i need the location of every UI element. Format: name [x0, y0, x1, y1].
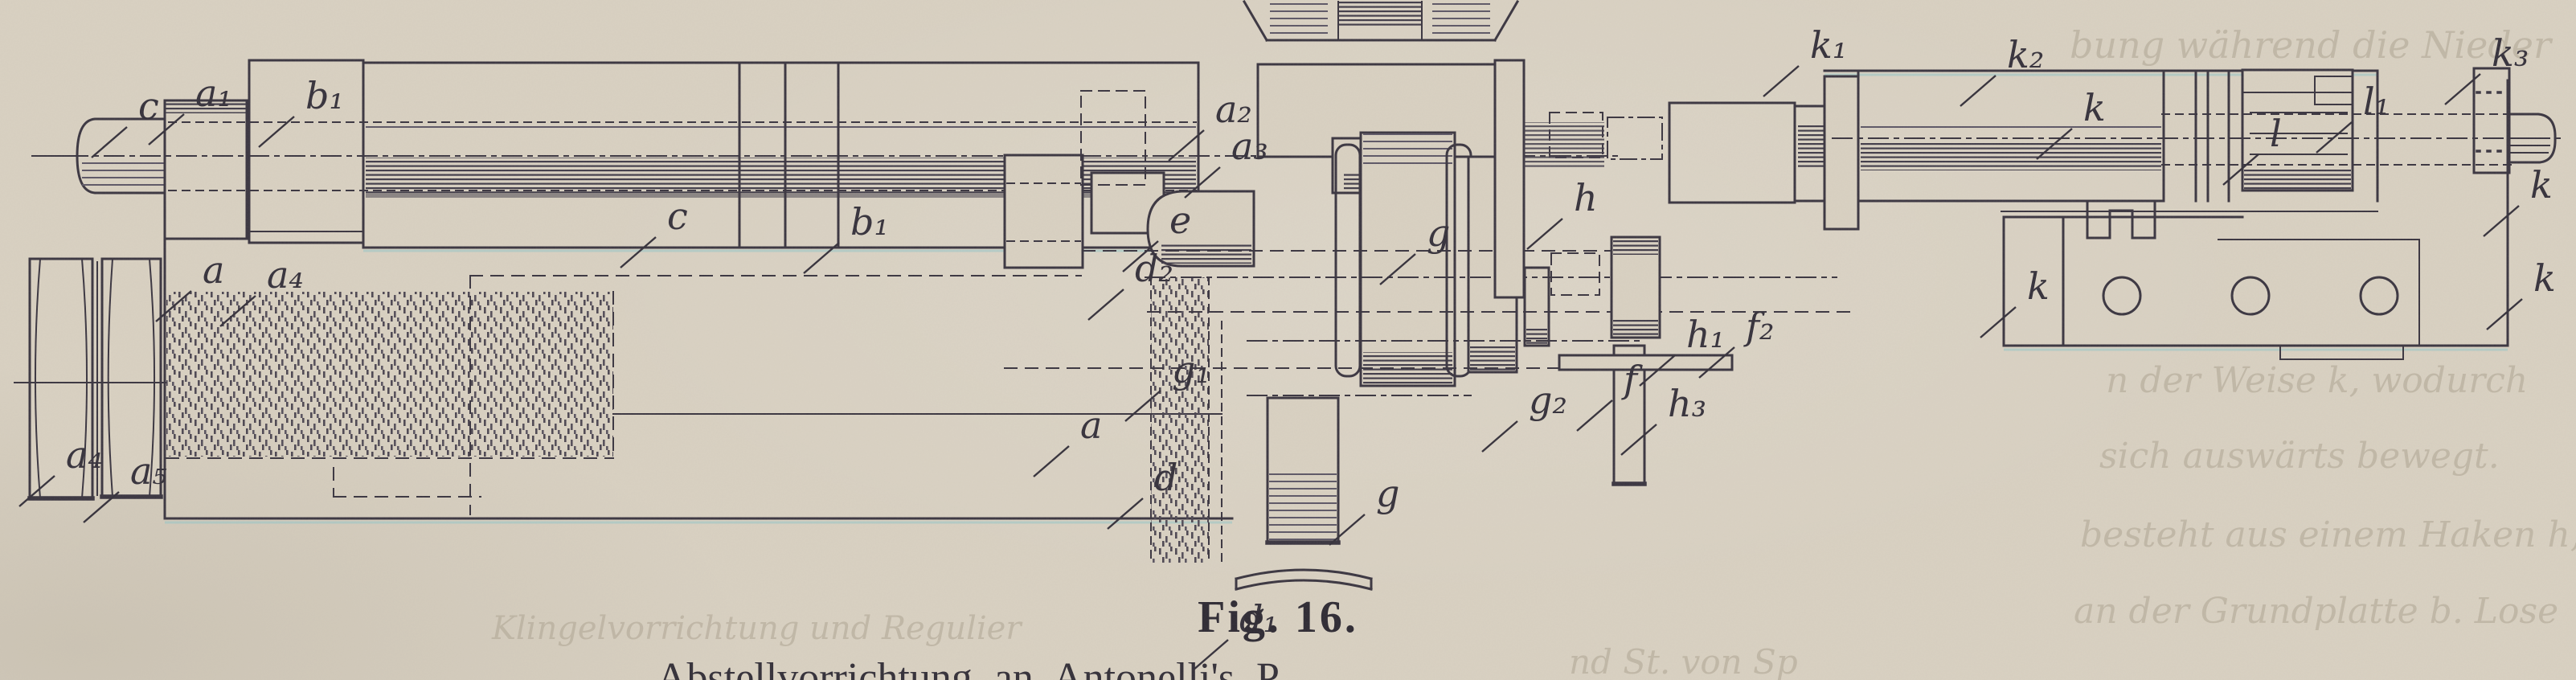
paper-grain-overlay — [0, 0, 2576, 680]
scanned-page: bung während die Niedern der Weise k, wo… — [0, 0, 2576, 680]
fig16-technical-drawing: bung während die Niedern der Weise k, wo… — [0, 0, 2576, 680]
